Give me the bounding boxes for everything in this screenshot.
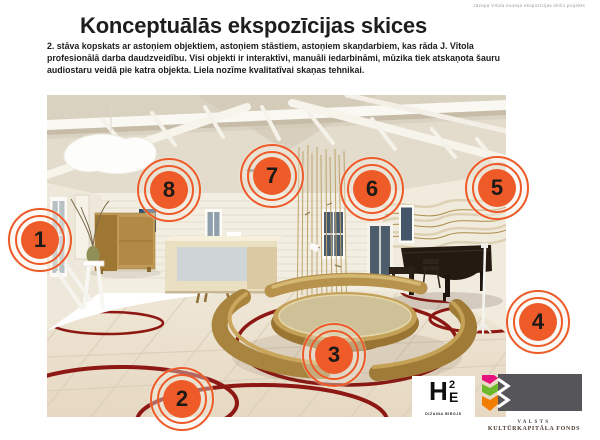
exhibit-marker-6: 6 (339, 156, 405, 222)
exhibit-marker-5: 5 (464, 155, 530, 221)
h2e-caption: DIZAINA BIROJS (412, 412, 475, 416)
vkkf-logo-mark (482, 374, 586, 412)
slide: Jāzepa Vītola muzeja ekspozīcijas skiču … (0, 0, 600, 440)
h2e-logo: H 2 E DIZAINA BIROJS (412, 376, 475, 418)
exhibit-marker-1: 1 (7, 207, 73, 273)
vkkf-logo: VALSTS KULTŪRKAPITĀLA FONDS (482, 374, 586, 432)
h2e-letter-h: H (429, 376, 448, 407)
left-doorway (75, 195, 89, 259)
exhibit-marker-2: 2 (149, 366, 215, 432)
marker-number: 1 (21, 221, 59, 259)
page-title: Konceptuālās ekspozīcijas skices (80, 13, 427, 39)
exhibit-marker-8: 8 (136, 157, 202, 223)
exhibit-marker-4: 4 (505, 289, 571, 355)
marker-number: 7 (253, 157, 291, 195)
marker-number: 3 (315, 336, 353, 374)
marker-number: 2 (163, 380, 201, 418)
marker-number: 5 (478, 169, 516, 207)
h2e-letter-e: E (449, 389, 458, 405)
vkkf-line1: VALSTS (482, 420, 586, 425)
reception-desk (165, 232, 283, 294)
vkkf-line2: KULTŪRKAPITĀLA FONDS (482, 426, 586, 432)
corner-note: Jāzepa Vītola muzeja ekspozīcijas skiču … (473, 3, 585, 8)
description-text: 2. stāva kopskats ar astoņiem objektiem,… (47, 41, 511, 76)
exhibit-marker-3: 3 (301, 322, 367, 388)
marker-number: 4 (519, 303, 557, 341)
marker-number: 6 (353, 170, 391, 208)
marker-number: 8 (150, 171, 188, 209)
exhibit-marker-7: 7 (239, 143, 305, 209)
h2e-logo-mark: H 2 E (429, 380, 463, 406)
